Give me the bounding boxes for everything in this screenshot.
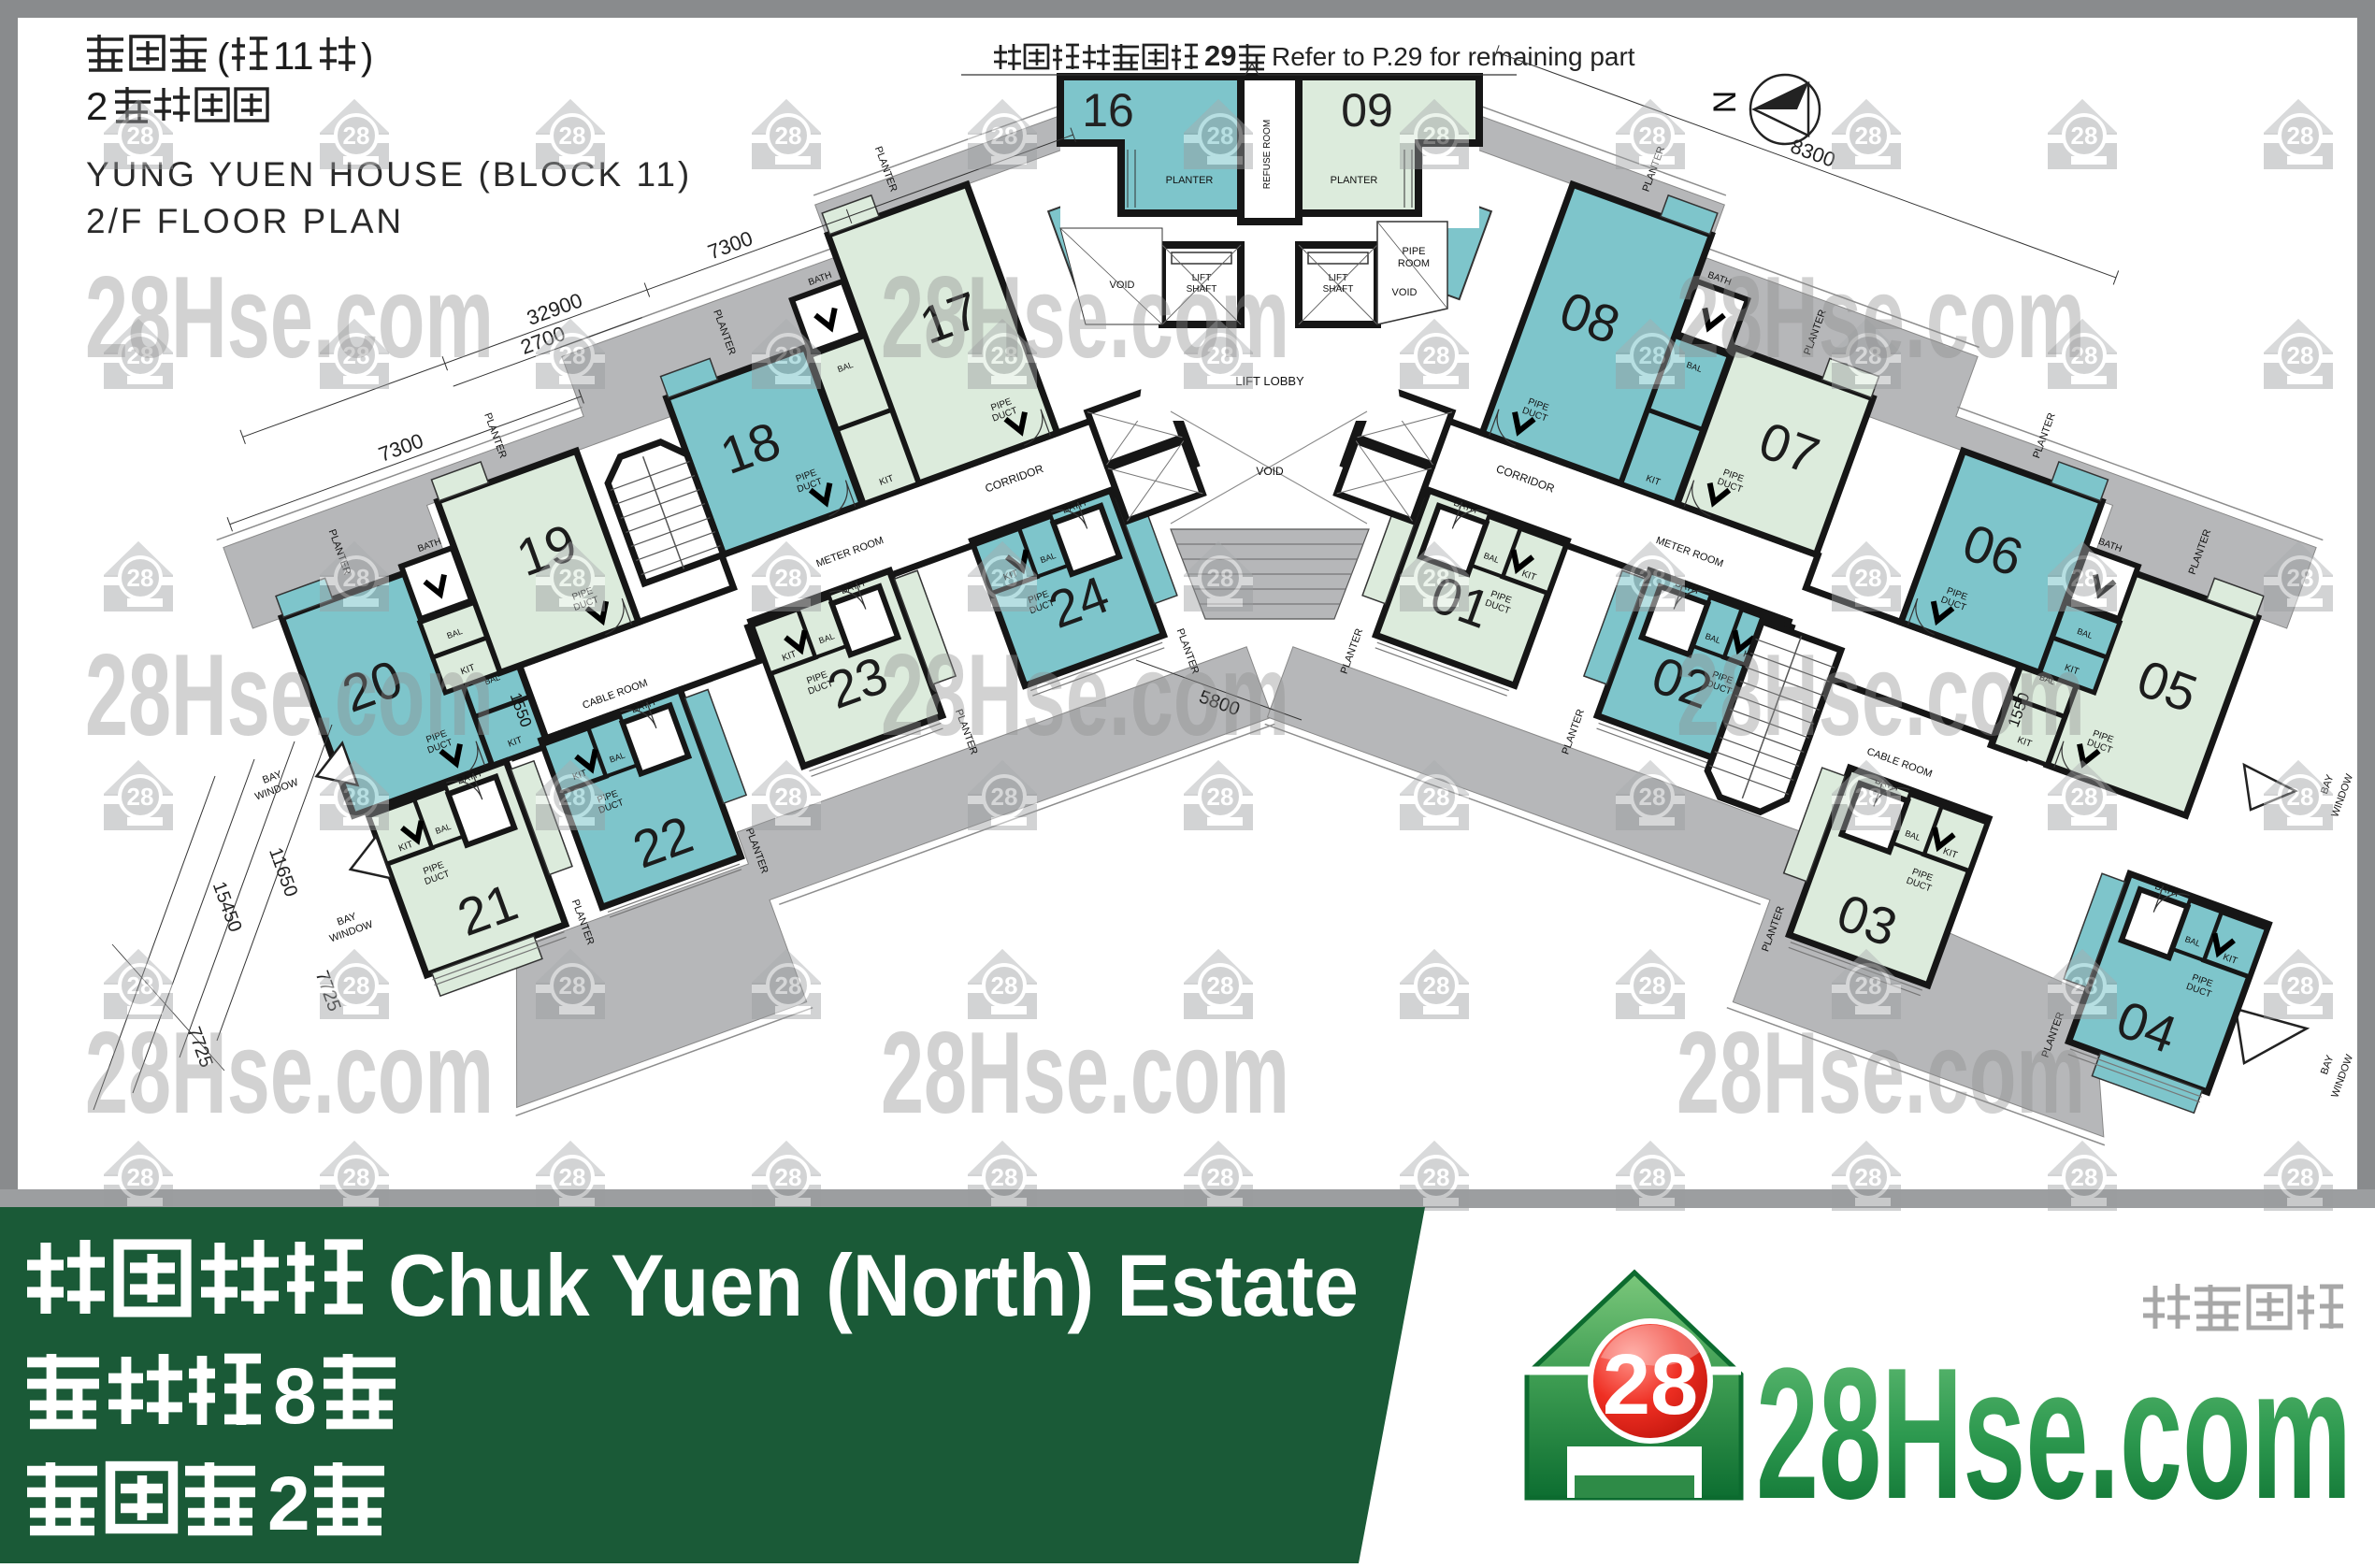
svg-text:28: 28 <box>127 783 154 811</box>
svg-text:28: 28 <box>991 971 1018 1000</box>
svg-text:ROOM: ROOM <box>1398 258 1430 269</box>
svg-text:28: 28 <box>2287 341 2314 369</box>
svg-text:28: 28 <box>343 564 370 592</box>
svg-text:28: 28 <box>559 971 586 1000</box>
svg-text:8: 8 <box>273 1352 317 1440</box>
svg-text:28: 28 <box>775 971 802 1000</box>
svg-text:28: 28 <box>2071 971 2098 1000</box>
svg-text:16: 16 <box>1082 84 1134 137</box>
svg-text:28: 28 <box>1207 1163 1234 1191</box>
svg-text:28: 28 <box>559 564 586 592</box>
svg-text:28: 28 <box>2071 122 2098 150</box>
svg-text:28Hse.com: 28Hse.com <box>881 253 1289 382</box>
svg-text:11: 11 <box>273 34 314 78</box>
svg-text:28: 28 <box>1207 122 1234 150</box>
svg-text:28: 28 <box>1603 1337 1698 1432</box>
svg-text:28: 28 <box>1423 1163 1450 1191</box>
svg-text:28: 28 <box>1855 564 1882 592</box>
svg-text:28: 28 <box>1207 564 1234 592</box>
svg-text:2: 2 <box>86 84 108 128</box>
svg-text:28: 28 <box>1855 122 1882 150</box>
svg-text:28: 28 <box>127 1163 154 1191</box>
svg-text:28: 28 <box>2287 783 2314 811</box>
svg-text:28: 28 <box>2287 1163 2314 1191</box>
svg-text:28: 28 <box>1639 341 1666 369</box>
svg-text:28: 28 <box>1639 783 1666 811</box>
svg-text:28: 28 <box>775 122 802 150</box>
svg-text:28: 28 <box>2287 564 2314 592</box>
svg-text:28: 28 <box>127 564 154 592</box>
svg-text:28: 28 <box>1855 971 1882 1000</box>
svg-text:2/F FLOOR PLAN: 2/F FLOOR PLAN <box>86 202 404 240</box>
svg-text:28: 28 <box>1207 783 1234 811</box>
svg-text:28: 28 <box>1423 783 1450 811</box>
svg-text:28Hse.com: 28Hse.com <box>85 253 494 382</box>
svg-text:28: 28 <box>1639 122 1666 150</box>
svg-text:28: 28 <box>559 122 586 150</box>
svg-text:28: 28 <box>1423 564 1450 592</box>
svg-text:SHAFT: SHAFT <box>1323 284 1354 295</box>
svg-text:28Hse.com: 28Hse.com <box>881 631 1289 760</box>
svg-text:28: 28 <box>343 783 370 811</box>
svg-text:2: 2 <box>267 1461 310 1546</box>
svg-text:28: 28 <box>1639 564 1666 592</box>
svg-text:28: 28 <box>559 1163 586 1191</box>
svg-text:28: 28 <box>1423 971 1450 1000</box>
svg-text:28: 28 <box>127 122 154 150</box>
svg-text:28: 28 <box>1423 122 1450 150</box>
svg-text:28: 28 <box>775 564 802 592</box>
svg-text:28Hse.com: 28Hse.com <box>1756 1330 2352 1538</box>
svg-text:28Hse.com: 28Hse.com <box>881 1009 1289 1138</box>
svg-text:28: 28 <box>2071 783 2098 811</box>
svg-text:28: 28 <box>775 783 802 811</box>
svg-text:PIPE: PIPE <box>1402 246 1425 257</box>
svg-text:28: 28 <box>1423 341 1450 369</box>
svg-text:28: 28 <box>2071 1163 2098 1191</box>
svg-text:28: 28 <box>2287 971 2314 1000</box>
svg-text:28Hse.com: 28Hse.com <box>85 631 494 760</box>
svg-text:28Hse.com: 28Hse.com <box>1677 1009 2085 1138</box>
svg-text:Chuk Yuen (North) Estate: Chuk Yuen (North) Estate <box>388 1236 1359 1334</box>
svg-text:28Hse.com: 28Hse.com <box>85 1009 494 1138</box>
svg-text:PLANTER: PLANTER <box>1331 175 1378 186</box>
svg-text:28: 28 <box>1855 783 1882 811</box>
svg-text:28: 28 <box>1639 1163 1666 1191</box>
svg-text:28Hse.com: 28Hse.com <box>1677 253 2085 382</box>
svg-text:28: 28 <box>991 564 1018 592</box>
svg-text:28: 28 <box>2287 122 2314 150</box>
svg-text:VOID: VOID <box>1392 287 1418 298</box>
svg-text:(: ( <box>217 36 230 78</box>
svg-text:28: 28 <box>2071 564 2098 592</box>
svg-text:28: 28 <box>559 341 586 369</box>
svg-text:28: 28 <box>1855 1163 1882 1191</box>
svg-text:28: 28 <box>991 122 1018 150</box>
svg-text:29: 29 <box>1204 39 1236 72</box>
svg-text:28: 28 <box>127 971 154 1000</box>
svg-text:Refer to P.29 for remaining pa: Refer to P.29 for remaining part <box>1272 42 1635 71</box>
svg-text:REFUSE ROOM: REFUSE ROOM <box>1262 120 1273 189</box>
svg-text:28: 28 <box>559 783 586 811</box>
svg-text:28: 28 <box>775 1163 802 1191</box>
svg-text:PLANTER: PLANTER <box>1166 175 1214 186</box>
svg-text:N: N <box>1707 91 1743 114</box>
svg-text:28: 28 <box>343 1163 370 1191</box>
svg-text:28Hse.com: 28Hse.com <box>1677 631 2085 760</box>
svg-text:09: 09 <box>1341 84 1393 137</box>
svg-text:28: 28 <box>343 971 370 1000</box>
svg-text:28: 28 <box>343 122 370 150</box>
svg-text:28: 28 <box>775 341 802 369</box>
svg-text:28: 28 <box>1207 971 1234 1000</box>
svg-text:28: 28 <box>1639 971 1666 1000</box>
svg-text:): ) <box>361 36 373 78</box>
svg-text:VOID: VOID <box>1256 465 1284 478</box>
svg-text:LIFT: LIFT <box>1329 273 1348 283</box>
svg-text:28: 28 <box>991 1163 1018 1191</box>
svg-text:28: 28 <box>991 783 1018 811</box>
